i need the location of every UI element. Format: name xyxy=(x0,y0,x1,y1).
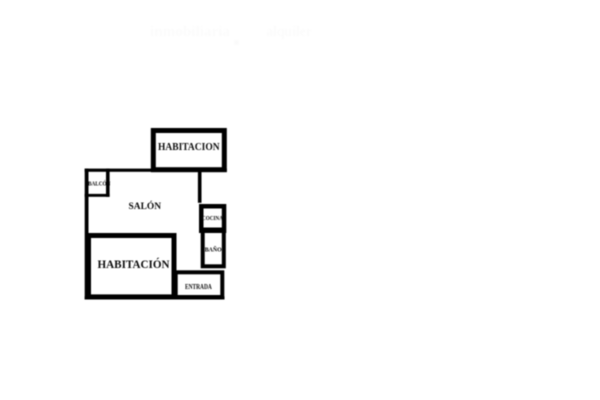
svg-text:HABITACION: HABITACION xyxy=(158,142,220,153)
svg-text:inmobiliaria: inmobiliaria xyxy=(150,24,230,40)
svg-text:SALÓN: SALÓN xyxy=(129,200,162,212)
svg-text:BAÑO: BAÑO xyxy=(205,245,222,253)
svg-text:HABITACIÓN: HABITACIÓN xyxy=(98,259,171,271)
svg-text:COCINA: COCINA xyxy=(202,215,223,222)
svg-text:ENTRADA: ENTRADA xyxy=(185,282,212,291)
svg-text:alquiler: alquiler xyxy=(266,24,312,40)
